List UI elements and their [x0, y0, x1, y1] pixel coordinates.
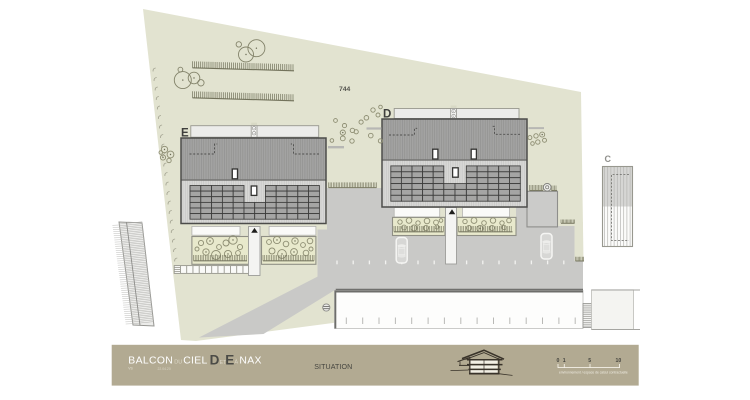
- svg-text:À: À: [234, 359, 238, 366]
- svg-text:CIEL: CIEL: [183, 356, 208, 367]
- svg-text:22.04.20: 22.04.20: [158, 367, 171, 371]
- svg-text:10: 10: [616, 358, 622, 364]
- svg-text:0: 0: [557, 358, 560, 364]
- svg-text:NAX: NAX: [239, 356, 261, 367]
- svg-text:1: 1: [563, 358, 566, 364]
- svg-text:744: 744: [339, 86, 351, 93]
- svg-text:environnement / espace de calc: environnement / espace de calcul contrac…: [559, 371, 628, 375]
- svg-text:DU: DU: [174, 360, 182, 366]
- svg-text:BALCON: BALCON: [128, 356, 173, 367]
- svg-text:SITUATION: SITUATION: [314, 363, 352, 371]
- svg-text:5: 5: [588, 358, 591, 364]
- svg-text:E: E: [225, 353, 234, 368]
- svg-text:VS: VS: [128, 367, 133, 371]
- svg-text:C: C: [605, 154, 612, 164]
- svg-text:D: D: [210, 353, 220, 368]
- svg-text:E: E: [181, 128, 189, 140]
- svg-text:D: D: [383, 109, 391, 121]
